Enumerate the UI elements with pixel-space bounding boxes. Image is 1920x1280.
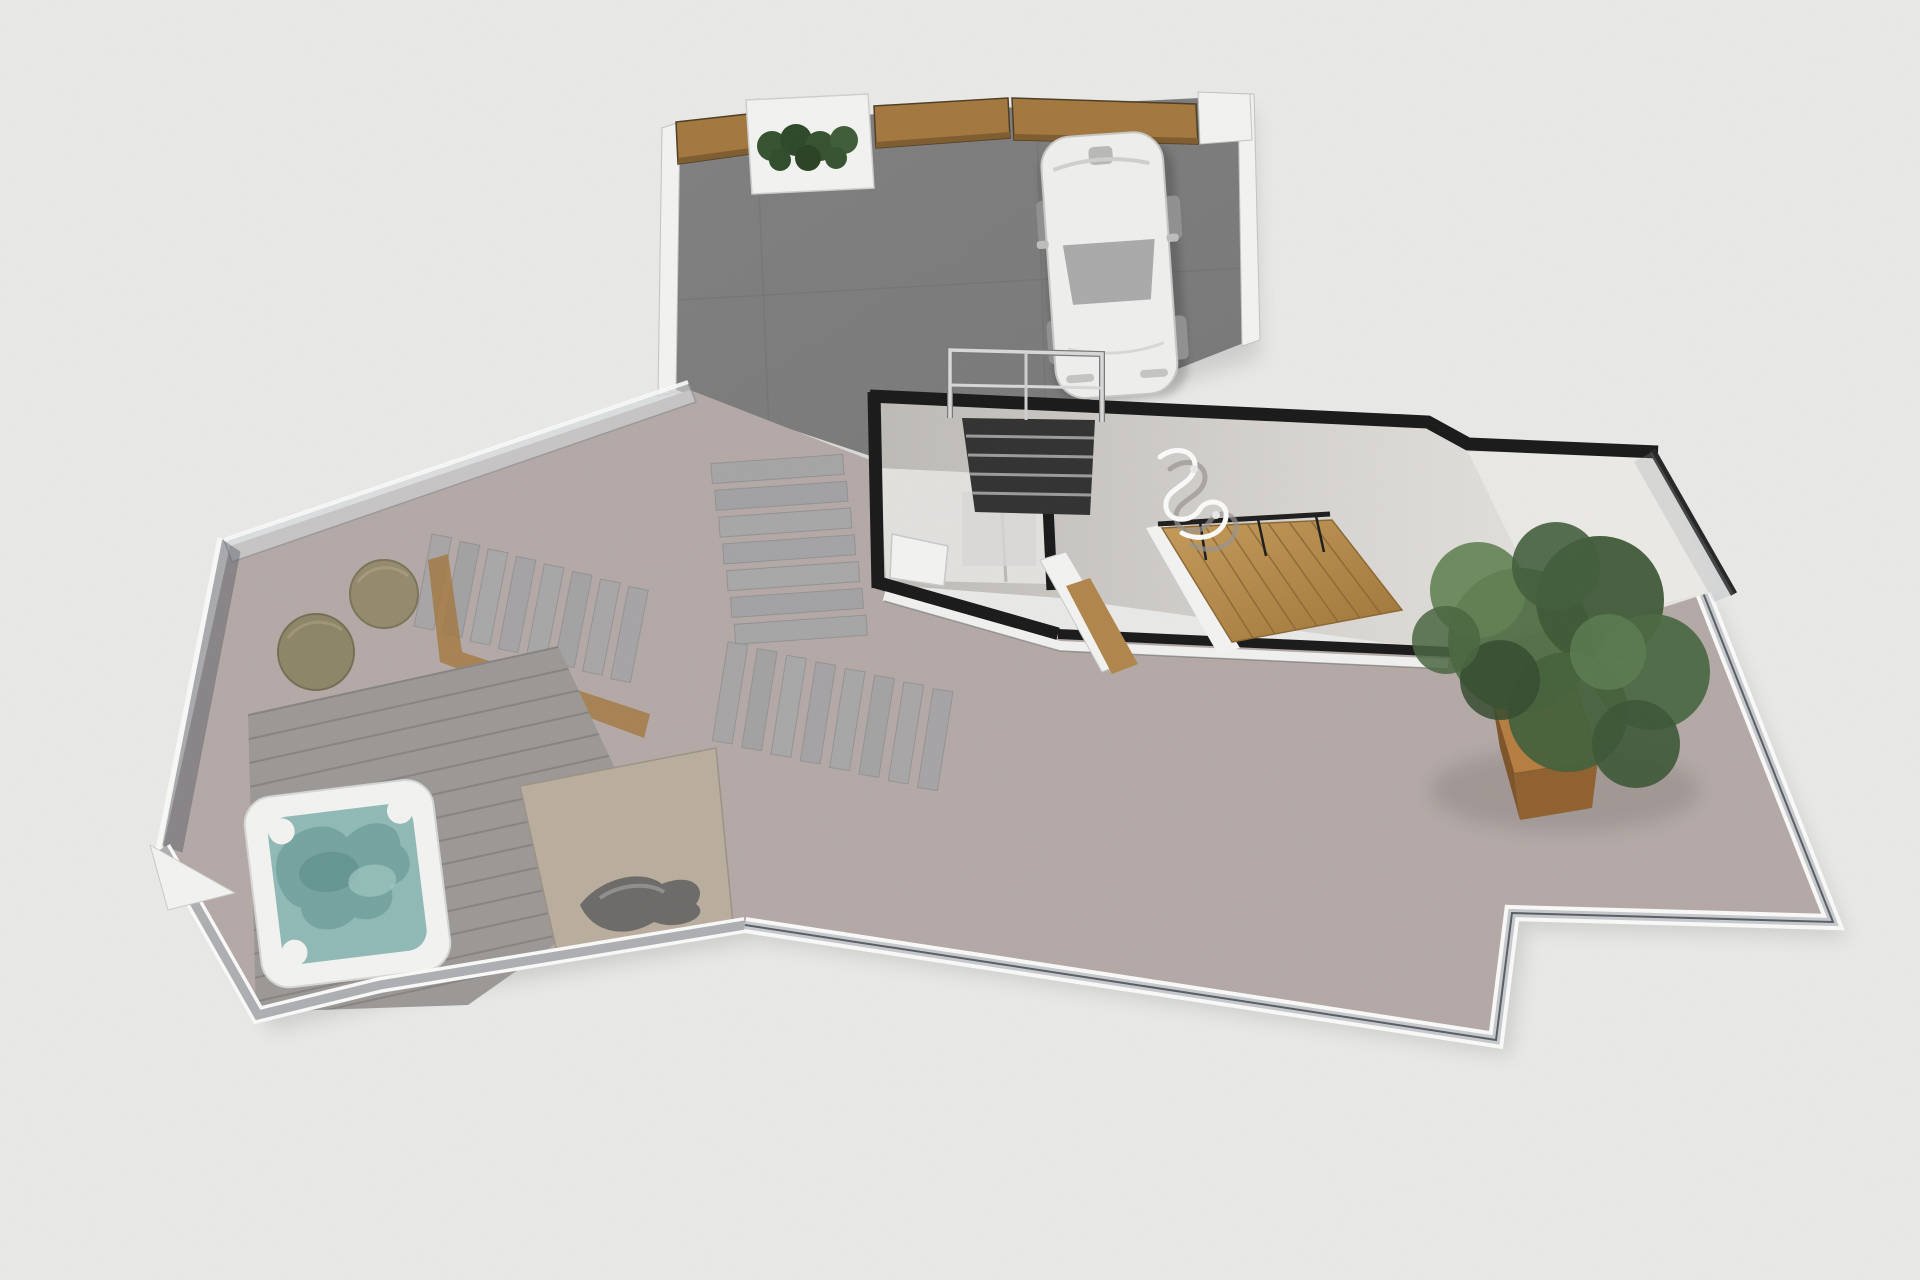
grain-overlay xyxy=(0,0,1920,1280)
floorplan-stage xyxy=(0,0,1920,1280)
floorplan-3d-canvas xyxy=(0,0,1920,1280)
